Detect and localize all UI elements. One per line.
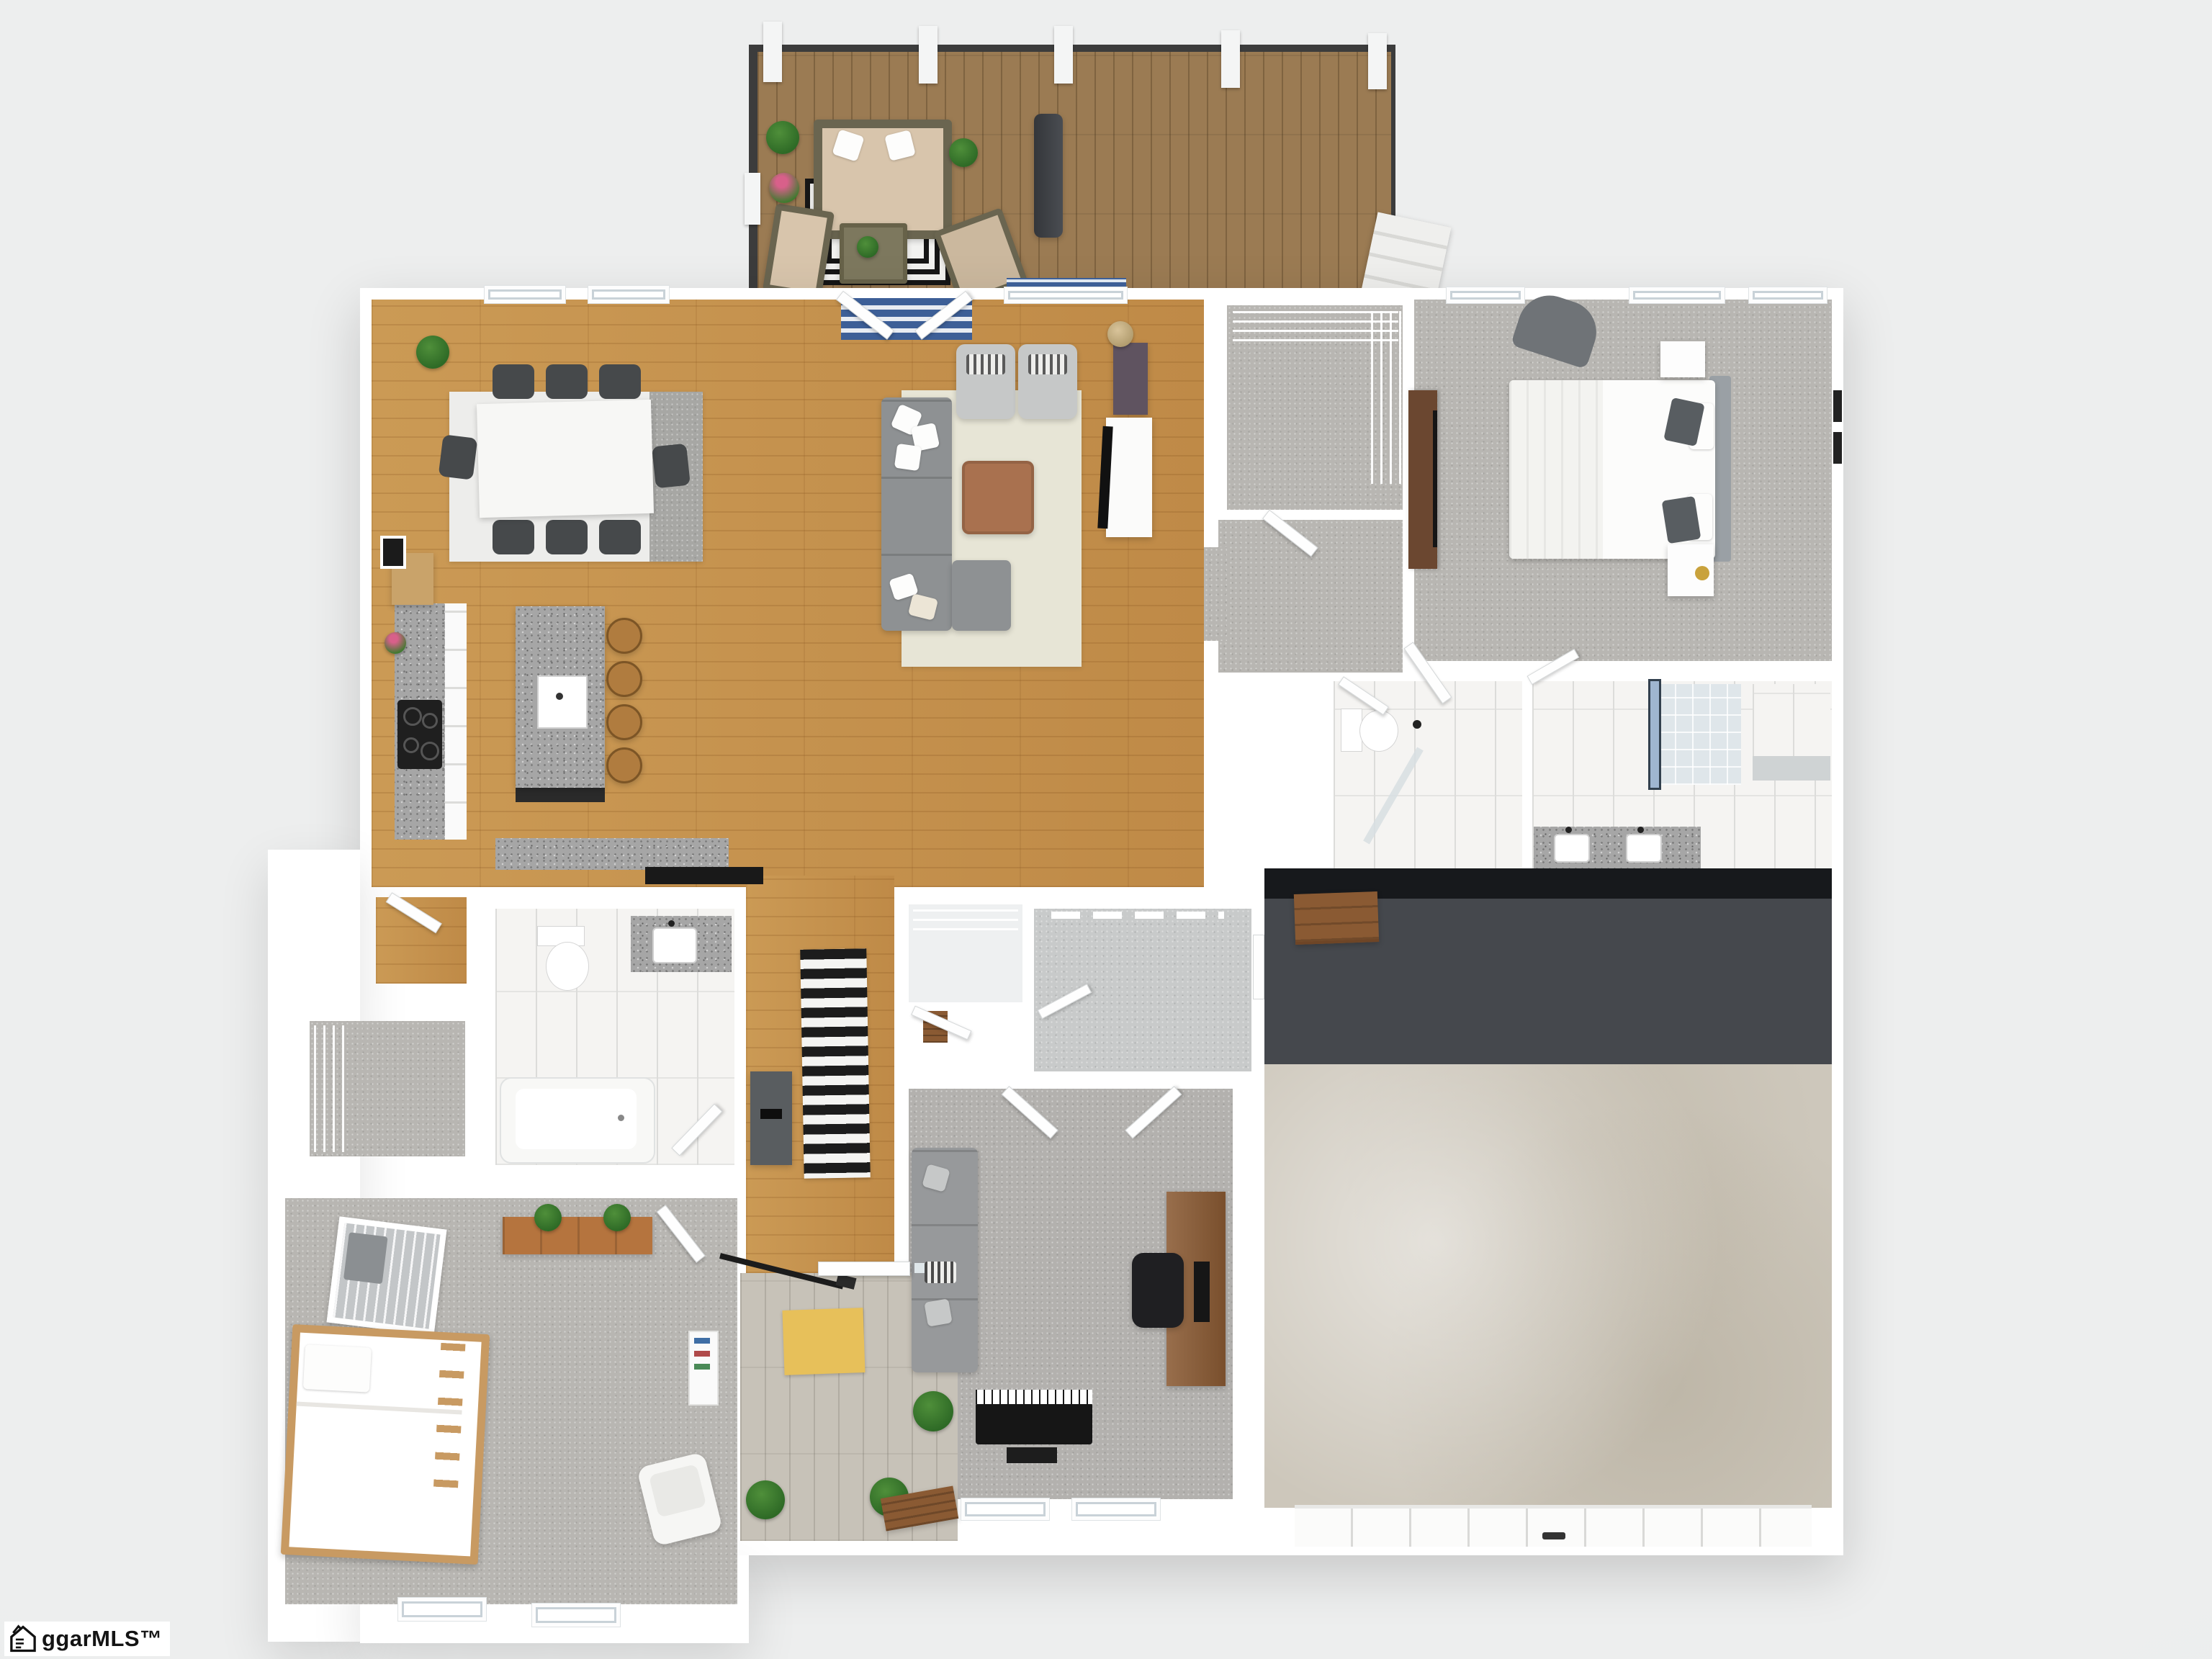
dining-chair [599,364,641,399]
window [1004,287,1128,304]
bar-stool [606,704,642,740]
toilet-bowl [546,942,589,991]
office-chair [1132,1253,1184,1328]
window [961,1498,1050,1521]
burner [403,707,422,726]
bar-stool [606,661,642,697]
grill [1034,114,1063,238]
books [694,1338,710,1344]
window [1071,1498,1161,1521]
wall-frame [1833,432,1842,464]
sofa-pillow [894,444,922,471]
wall-art-frame [380,536,406,569]
deck-flower-pot [769,173,799,203]
piano-bench [1007,1447,1057,1463]
bed-pillow [303,1344,372,1393]
dining-table [477,400,654,518]
console-slot [760,1109,782,1119]
closet-shelving-right [1371,311,1401,484]
mudroom-window-slits [1051,912,1224,919]
dining-chair [599,520,641,554]
vanity-faucet [668,920,675,927]
kitchen-cabinet-fronts [445,603,467,840]
hallway-opening [1204,547,1227,641]
window [484,285,566,304]
office-plant [913,1391,953,1431]
bedroom-tv [1433,410,1437,547]
tub-drain [618,1115,624,1121]
kids-bed [281,1324,490,1565]
yellow-door-mat [782,1308,865,1375]
deck-post [1054,26,1073,84]
dresser-plant [603,1204,631,1231]
window [397,1597,487,1622]
window [588,285,670,304]
watermark: ggarMLS™ [4,1622,170,1656]
window [1748,287,1827,304]
sectional-chaise [952,560,1011,631]
striped-runner-rug [800,948,871,1179]
tv-console [1106,418,1152,537]
piano-keys [976,1390,1092,1404]
red-flower-vase [385,632,406,654]
nursery-bookshelf [688,1331,719,1406]
books [694,1351,710,1357]
island-sink [537,675,588,729]
deck-sofa [814,120,952,239]
deck-post [763,22,782,82]
window [1446,287,1525,304]
dining-chair [493,364,534,399]
dresser-plant [534,1204,562,1231]
deck-plant [766,121,799,154]
burner [422,713,438,729]
gold-lamp [1695,566,1709,580]
crib [327,1216,447,1335]
burner [421,742,439,760]
console-table [1113,343,1148,415]
floorplan-render: ggarMLS™ [0,0,2212,1659]
deck-post [745,173,760,225]
garage-concrete-floor [1264,1064,1832,1508]
linen-closet-shelving [314,1025,346,1152]
window [1629,287,1725,304]
garage-door-handle [1542,1532,1565,1539]
dining-corner-plant [416,336,449,369]
office-sofa-pillow [924,1298,952,1326]
books [694,1364,710,1370]
bed-rail-ladder [433,1343,465,1488]
ottoman-coffee-table [962,461,1034,534]
toilet-bowl [1359,710,1398,752]
sink-faucet [556,693,563,700]
front-door [818,1262,910,1276]
pampas-vase [1107,321,1133,347]
deck-plant [949,138,978,167]
bar-stool [606,747,642,783]
crib-blanket [343,1232,388,1284]
duvet-folds [1509,380,1603,559]
garage-entry-door [1253,935,1264,999]
armchair-cushion [649,1464,706,1518]
window [531,1603,621,1627]
deck-post [1368,33,1387,89]
garage-entry-steps [1294,891,1379,945]
watermark-text: ggarMLS™ [42,1626,163,1652]
vanity-sink [652,927,697,963]
desk-monitor [1194,1262,1210,1322]
mudroom-floor [1034,909,1251,1071]
dining-chair [652,444,691,489]
dining-chair [439,434,478,480]
deck-post [1221,30,1240,88]
nightstand [1660,341,1705,377]
wall-frame [1833,390,1842,422]
glass-shower-panel [1650,681,1659,788]
vanity-faucet [1637,827,1644,833]
dining-chair [493,520,534,554]
vanity-sink [1626,834,1662,863]
vanity-faucet [1565,827,1572,833]
piano-body [976,1403,1092,1444]
cooktop [397,700,442,769]
burner [403,737,419,753]
shower-head [1413,720,1421,729]
armchair-striped-pillow [1028,354,1067,374]
coat-closet-shelf [913,909,1018,930]
garage-door [1295,1505,1812,1547]
nursery-dresser [503,1217,652,1254]
deck-table-plant [857,236,878,258]
kitchen-dark-backsplash [645,867,763,884]
bar-stool [606,618,642,654]
bed-pillow-dark [1662,496,1701,544]
kitchen-counter-south [495,838,729,870]
office-striped-pillow [925,1262,956,1283]
watermark-house-icon [7,1623,39,1655]
deck-post [919,26,938,84]
dining-chair [546,520,588,554]
armchair-striped-pillow [966,354,1005,374]
porch-plant [746,1480,785,1519]
shower-bench [1753,756,1830,781]
dining-chair [546,364,588,399]
vanity-sink [1554,834,1590,863]
walk-in-shower-floor [1658,684,1741,785]
